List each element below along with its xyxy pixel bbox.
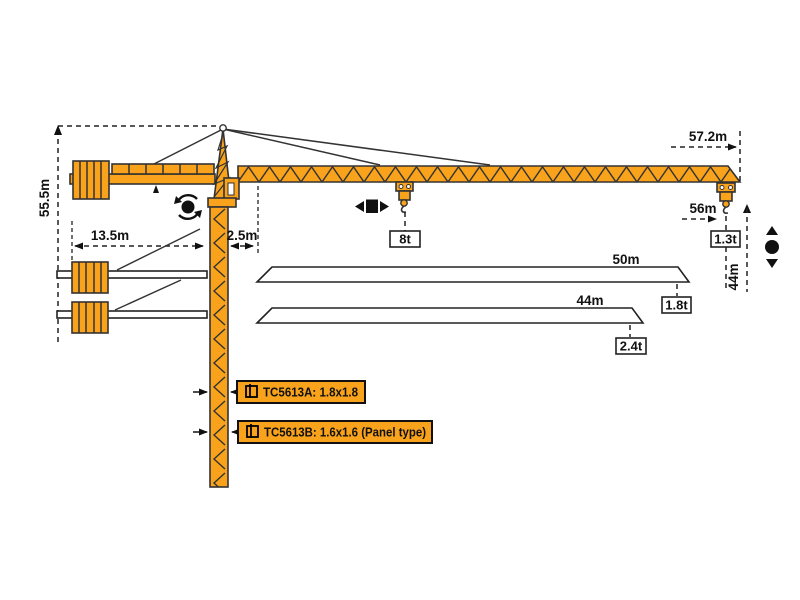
trolley-mid-block (399, 191, 410, 200)
jib-option-50m-outline (257, 267, 689, 282)
trolley-travel-icon (355, 200, 389, 214)
main-jib-lattice (238, 166, 740, 182)
jib-option-50m: 50m 1.8t (257, 252, 691, 313)
trolley-wheel-icon (720, 186, 724, 190)
jib-option-44m: 44m 2.4t (257, 293, 646, 354)
trolley-tip-block (720, 192, 732, 201)
trolley-wheel-icon (407, 185, 411, 189)
hoist-icon (765, 226, 779, 268)
tip-load-50m: 1.8t (665, 298, 688, 313)
cab-window (228, 183, 234, 195)
hook-mid-icon (402, 206, 406, 212)
dim-mast-offset: 2.5m (227, 228, 258, 243)
counter-jib-variant-1 (57, 262, 207, 293)
variant-1-leader-line (117, 229, 200, 270)
crane-diagram-svg: 55.5m (0, 0, 800, 600)
dim-total-height: 55.5m (37, 179, 52, 217)
jib-option-44m-outline (257, 308, 643, 323)
counter-jib (70, 161, 215, 199)
variant-2-leader-line (115, 280, 181, 310)
trolley-mid (396, 182, 413, 212)
model-b-label: TC5613B: 1.6x1.6 (Panel type) (264, 425, 426, 440)
hook-tip-icon (724, 207, 728, 213)
operator-cab (224, 178, 239, 199)
model-b-callout: TC5613B: 1.6x1.6 (Panel type) (193, 421, 432, 443)
crane-diagram: 55.5m (0, 0, 800, 600)
hook-ball-mid (401, 200, 407, 206)
dim-counter-jib: 13.5m (91, 228, 129, 243)
dim-tip-hook-height: 44m (726, 263, 741, 290)
counter-jib-variant-2 (57, 302, 207, 333)
tower-mast (210, 207, 228, 487)
slewing-platform (208, 198, 236, 207)
mast-lattice (210, 207, 228, 487)
slewing-icon (174, 195, 202, 219)
trolley-wheel-icon (729, 186, 733, 190)
max-load: 8t (399, 232, 411, 247)
model-a-label: TC5613A: 1.8x1.8 (263, 385, 358, 400)
counter-jib-tie-bar (152, 129, 223, 165)
beam-marker-icon (153, 185, 159, 193)
counterweight-block (73, 161, 109, 199)
tip-load-57m: 1.3t (714, 232, 737, 247)
variant-2-counterweight (72, 302, 108, 333)
main-jib (238, 166, 740, 182)
apex-pin-icon (220, 125, 226, 131)
tip-load-44m: 2.4t (620, 339, 643, 354)
trolley-tip (717, 183, 735, 213)
hook-ball-tip (723, 201, 729, 207)
variant-1-counterweight (72, 262, 108, 293)
jib-option-44m-label: 44m (576, 293, 603, 308)
dim-max-radius: 57.2m (689, 129, 727, 144)
jib-option-50m-label: 50m (612, 252, 639, 267)
dim-tip-hook-radius: 56m (689, 201, 716, 216)
trolley-wheel-icon (399, 185, 403, 189)
